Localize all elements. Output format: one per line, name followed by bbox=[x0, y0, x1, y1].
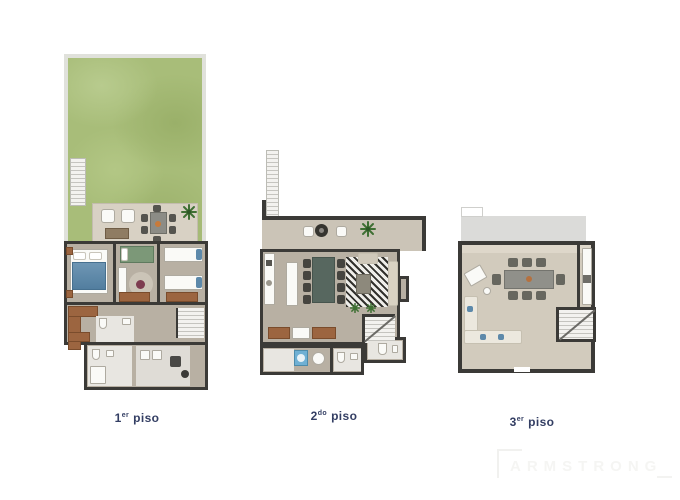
potted-plant-icon bbox=[350, 303, 360, 313]
washer-door bbox=[297, 354, 305, 362]
outdoor-coffee-table bbox=[105, 228, 129, 239]
dining-chair bbox=[303, 295, 311, 304]
stool bbox=[181, 370, 189, 378]
floor-2-label: 2dopiso bbox=[294, 409, 374, 423]
potted-plant-icon bbox=[366, 303, 376, 313]
dining-chair bbox=[508, 258, 518, 267]
toilet bbox=[99, 318, 107, 329]
palm-plant-icon bbox=[360, 221, 376, 237]
floor-word: piso bbox=[133, 411, 159, 425]
pillow bbox=[73, 252, 86, 260]
floor-number: 3 bbox=[510, 415, 517, 429]
floor-ordinal-suffix: er bbox=[517, 416, 524, 423]
dining-chair bbox=[522, 291, 532, 300]
outdoor-chair bbox=[336, 226, 347, 237]
sink bbox=[122, 318, 131, 325]
closet bbox=[68, 306, 98, 317]
dining-table bbox=[312, 257, 335, 303]
floor-word: piso bbox=[528, 415, 554, 429]
floor-ordinal-suffix: do bbox=[318, 410, 327, 417]
floor-word: piso bbox=[331, 409, 357, 423]
kitchen-island bbox=[286, 262, 298, 306]
dining-chair bbox=[337, 271, 345, 280]
pillow bbox=[121, 248, 128, 261]
shower-base bbox=[312, 352, 325, 365]
dining-chair bbox=[492, 274, 501, 285]
outdoor-chair bbox=[141, 226, 148, 234]
outdoor-chair bbox=[169, 226, 176, 234]
watermark-dash bbox=[657, 476, 672, 478]
outdoor-armchair bbox=[101, 209, 115, 223]
wall bbox=[262, 216, 426, 220]
master-bed-duvet bbox=[72, 262, 106, 290]
side-table bbox=[483, 287, 491, 295]
appliance bbox=[152, 350, 162, 360]
outdoor-chair bbox=[303, 226, 314, 237]
floorplan-sheet: 1erpiso bbox=[0, 0, 680, 500]
exterior-staircase bbox=[266, 150, 279, 220]
balcony-nook bbox=[398, 276, 409, 302]
outdoor-chair bbox=[141, 214, 148, 222]
window-ledge bbox=[462, 245, 591, 253]
floor-3-label: 3erpiso bbox=[492, 415, 572, 429]
dining-chair bbox=[337, 259, 345, 268]
office-chair bbox=[170, 356, 181, 367]
sectional-sofa bbox=[464, 330, 522, 344]
outdoor-chair bbox=[153, 205, 161, 212]
table-centerpiece bbox=[155, 221, 161, 227]
fire-table-center bbox=[319, 228, 324, 233]
floor-number: 1 bbox=[115, 411, 122, 425]
toilet bbox=[92, 349, 100, 360]
cushion bbox=[480, 334, 486, 340]
dining-chair bbox=[337, 295, 345, 304]
cabinet bbox=[268, 327, 290, 339]
laundry-floor bbox=[264, 349, 294, 371]
staircase bbox=[176, 308, 204, 338]
sink bbox=[106, 350, 114, 357]
partition-wall bbox=[67, 302, 206, 305]
table-centerpiece bbox=[526, 276, 532, 282]
dining-chair bbox=[303, 271, 311, 280]
palm-plant-icon bbox=[181, 204, 197, 220]
roof-hatch bbox=[461, 207, 483, 217]
floor-number: 2 bbox=[311, 409, 318, 423]
dresser bbox=[119, 292, 150, 302]
garden-deck-stairs bbox=[70, 158, 86, 206]
kitchen-sink bbox=[266, 280, 272, 286]
door-opening bbox=[514, 367, 530, 372]
outdoor-armchair bbox=[121, 209, 135, 223]
sofa bbox=[388, 261, 398, 306]
dining-chair bbox=[508, 291, 518, 300]
stove bbox=[266, 260, 272, 266]
sink bbox=[392, 345, 398, 353]
armstrong-watermark: ARMSTRONG bbox=[510, 458, 662, 475]
cabinet bbox=[292, 327, 310, 339]
dining-chair bbox=[536, 258, 546, 267]
dresser bbox=[166, 292, 198, 302]
nightstand bbox=[66, 290, 73, 298]
pillow bbox=[196, 249, 202, 260]
cabinet bbox=[312, 327, 336, 339]
cushion bbox=[498, 334, 504, 340]
appliance bbox=[140, 350, 150, 360]
roof-area bbox=[461, 216, 586, 244]
dining-chair bbox=[303, 259, 311, 268]
floor-1-label: 1erpiso bbox=[97, 411, 177, 425]
appliance bbox=[583, 275, 591, 283]
nightstand bbox=[66, 247, 73, 255]
sink bbox=[350, 353, 358, 360]
partition-wall bbox=[330, 348, 333, 372]
pillow bbox=[89, 252, 102, 260]
wall bbox=[422, 216, 426, 251]
toilet bbox=[378, 343, 387, 355]
partition-wall bbox=[113, 244, 116, 304]
partition-wall bbox=[157, 244, 160, 304]
dining-chair bbox=[556, 274, 565, 285]
dining-chair bbox=[522, 258, 532, 267]
shower bbox=[90, 366, 106, 384]
outdoor-chair bbox=[169, 214, 176, 222]
floor-ordinal-suffix: er bbox=[122, 412, 129, 419]
partition-wall bbox=[577, 245, 580, 307]
toilet bbox=[337, 352, 345, 363]
pillow bbox=[196, 277, 202, 288]
closet bbox=[68, 332, 90, 342]
coffee-table bbox=[356, 274, 371, 294]
armchair bbox=[358, 253, 378, 264]
desk-chair bbox=[136, 280, 145, 289]
cushion bbox=[467, 306, 473, 312]
dining-chair bbox=[536, 291, 546, 300]
dining-chair bbox=[337, 283, 345, 292]
dining-chair bbox=[303, 283, 311, 292]
